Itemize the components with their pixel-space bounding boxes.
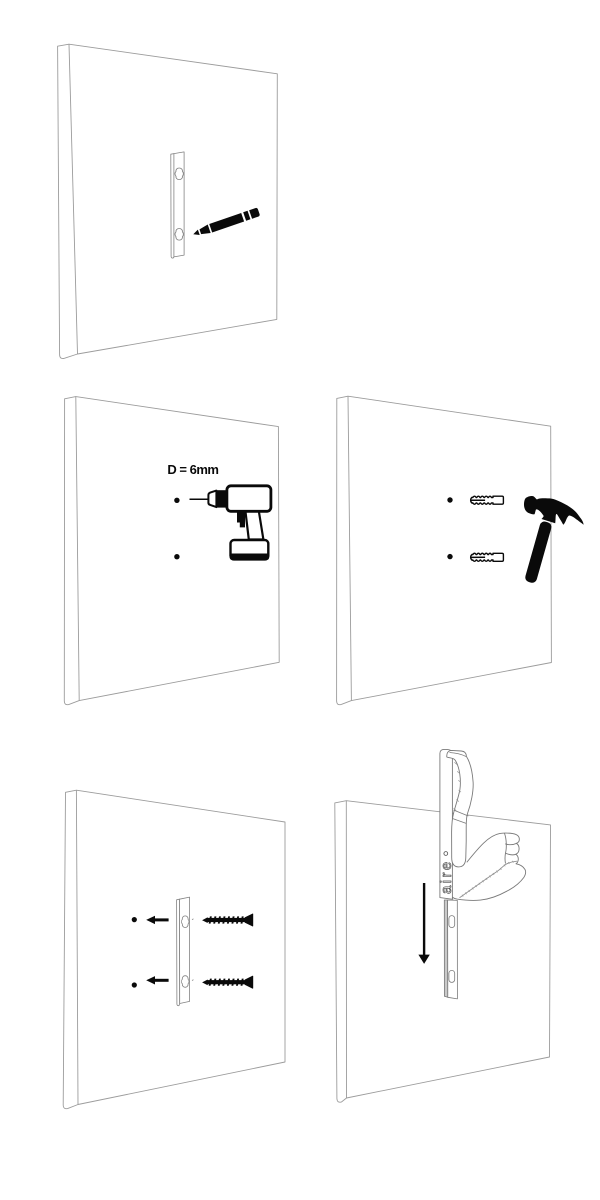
- svg-text:aire: aire: [438, 859, 455, 894]
- svg-text:D = 6mm: D = 6mm: [167, 462, 218, 477]
